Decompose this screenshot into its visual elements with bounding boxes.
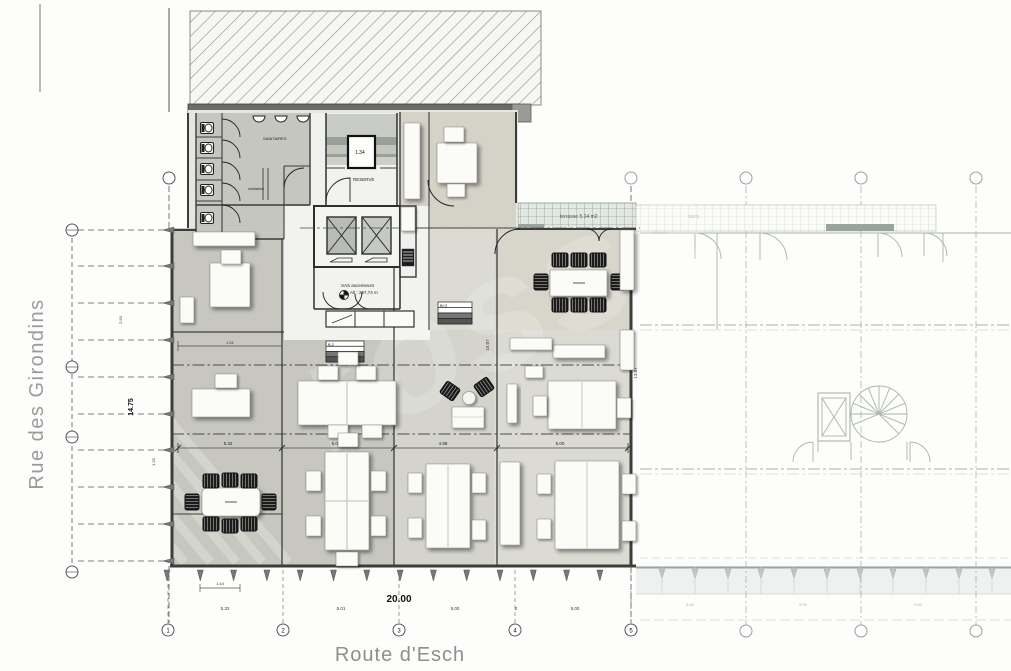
svg-text:vestiaires: vestiaires xyxy=(248,187,264,191)
svg-text:B.2: B.2 xyxy=(328,342,335,347)
svg-text:1.44: 1.44 xyxy=(216,581,225,586)
svg-text:1.34: 1.34 xyxy=(355,150,365,156)
svg-text:5.00: 5.00 xyxy=(451,606,460,611)
svg-text:4.98: 4.98 xyxy=(439,441,448,446)
svg-text:15.07: 15.07 xyxy=(485,339,490,351)
svg-text:20.00: 20.00 xyxy=(386,594,411,605)
svg-text:5.01: 5.01 xyxy=(337,606,346,611)
svg-text:Rue des Girondins: Rue des Girondins xyxy=(26,298,48,489)
svg-text:1.51: 1.51 xyxy=(226,340,235,345)
svg-text:5.00: 5.00 xyxy=(799,602,808,607)
svg-text:SAS ascenseurs: SAS ascenseurs xyxy=(341,283,375,288)
svg-text:2.50: 2.50 xyxy=(118,315,123,324)
svg-text:5.32: 5.32 xyxy=(221,606,230,611)
svg-text:Route d'Esch: Route d'Esch xyxy=(335,644,465,666)
svg-text:5.00: 5.00 xyxy=(571,606,580,611)
svg-text:5.00: 5.00 xyxy=(556,441,565,446)
svg-text:5.00: 5.00 xyxy=(686,602,695,607)
svg-text:RESERVE: RESERVE xyxy=(353,177,374,182)
svg-text:SANITAIRES: SANITAIRES xyxy=(263,136,287,141)
svg-text:B+2: B+2 xyxy=(440,303,448,308)
svg-text:1.25: 1.25 xyxy=(151,457,156,466)
svg-text:Alt : 297,74 m: Alt : 297,74 m xyxy=(350,290,378,295)
svg-text:14.75: 14.75 xyxy=(128,398,135,416)
svg-text:5.32: 5.32 xyxy=(224,441,233,446)
svg-text:5.00: 5.00 xyxy=(914,602,923,607)
